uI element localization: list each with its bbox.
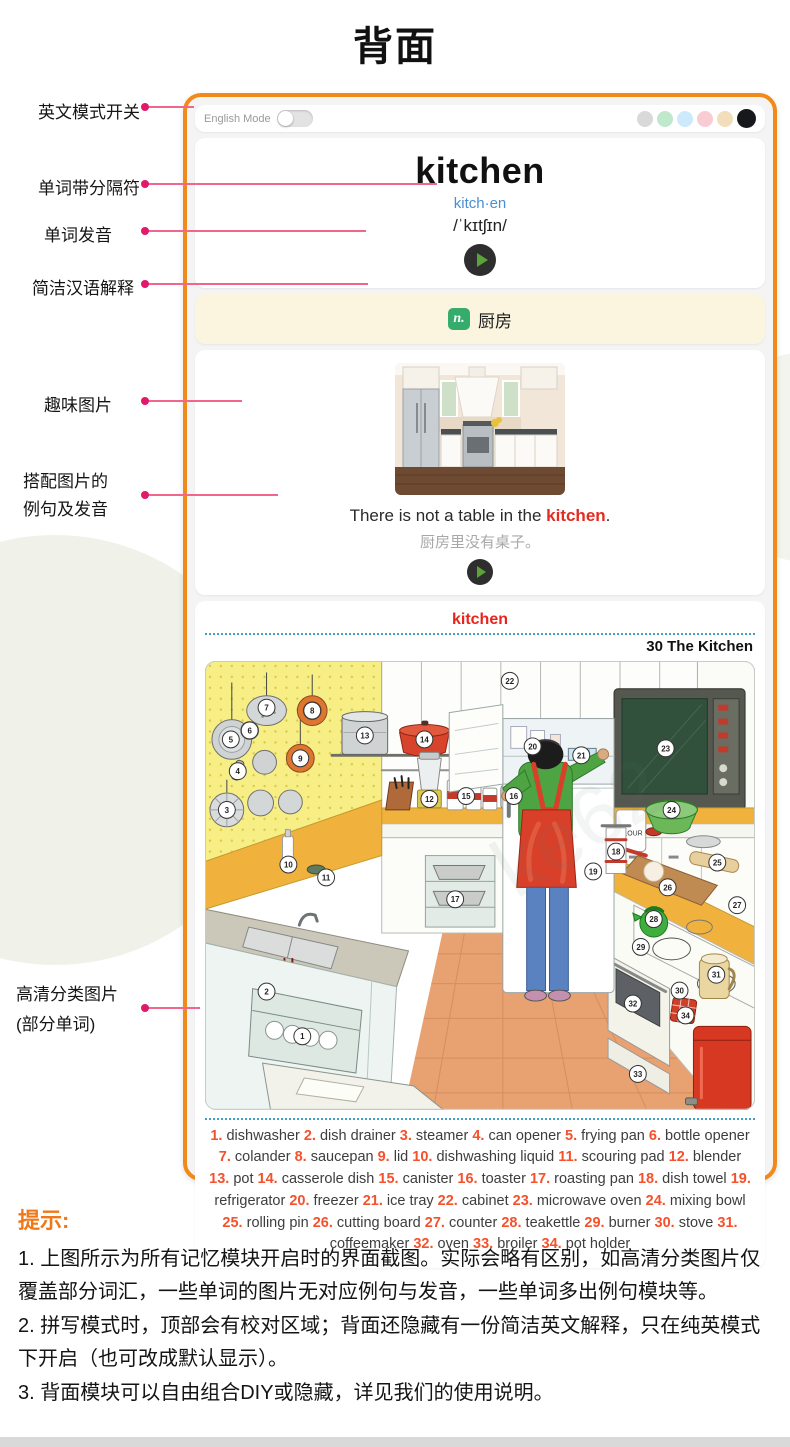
category-section: kitchen 30 The Kitchen: [195, 601, 765, 1268]
word-list-number: 16.: [457, 1171, 481, 1187]
word-list-number: 10.: [412, 1149, 436, 1165]
svg-text:5: 5: [229, 735, 234, 744]
tips-section: 提示: 1. 上图所示为所有记忆模块开启时的界面截图。实际会略有区别，如高清分类…: [18, 1203, 774, 1411]
word-list-term: saucepan: [311, 1149, 378, 1165]
annotation-chinese-def: 简洁汉语解释: [32, 274, 134, 299]
svg-text:29: 29: [636, 943, 645, 952]
word-list-number: 2.: [304, 1128, 320, 1144]
definition-section: n. 厨房: [195, 294, 765, 344]
word-list-number: 6.: [649, 1128, 665, 1144]
svg-text:33: 33: [633, 1070, 642, 1079]
svg-text:17: 17: [451, 895, 460, 904]
svg-text:11: 11: [322, 873, 331, 882]
word-list-number: 8.: [295, 1149, 311, 1165]
word-phonetic: /ˈkɪtʃɪn/: [195, 216, 765, 236]
annotation-hd-line2: (部分单词): [16, 1015, 95, 1034]
example-audio-button[interactable]: [467, 559, 493, 585]
word-list-term: dish towel: [662, 1171, 731, 1187]
word-list-term: lid: [394, 1149, 413, 1165]
connector-dot: [141, 280, 149, 288]
word-list-number: 4.: [472, 1128, 488, 1144]
example-section: There is not a table in the kitchen. 厨房里…: [195, 350, 765, 595]
category-keyword: kitchen: [205, 611, 755, 629]
word-list-number: 12.: [669, 1149, 693, 1165]
word-list-number: 7.: [219, 1149, 235, 1165]
svg-text:18: 18: [612, 848, 621, 857]
svg-text:19: 19: [589, 867, 598, 876]
svg-text:26: 26: [663, 883, 672, 892]
play-icon: [477, 566, 486, 578]
word-audio-button[interactable]: [464, 244, 496, 276]
word-list-term: dishwashing liquid: [436, 1149, 558, 1165]
annotation-pronunciation: 单词发音: [44, 221, 112, 246]
connector-dot: [141, 180, 149, 188]
svg-text:14: 14: [420, 735, 429, 744]
annotation-example: 搭配图片的例句及发音: [23, 468, 108, 524]
word-list-number: 5.: [565, 1128, 581, 1144]
word-list-term: steamer: [416, 1128, 472, 1144]
play-icon: [477, 253, 488, 267]
word-list-term: can opener: [488, 1128, 565, 1144]
connector-line: [146, 494, 278, 496]
word-list-term: dish drainer: [320, 1128, 400, 1144]
tips-heading: 提示:: [18, 1203, 774, 1235]
page-title: 背面: [0, 14, 790, 72]
sentence-keyword: kitchen: [546, 506, 606, 525]
word-list-number: 13.: [209, 1171, 233, 1187]
annotation-fun-picture: 趣味图片: [44, 391, 112, 416]
annotation-example-line2: 例句及发音: [23, 500, 108, 519]
word-list-term: blender: [693, 1149, 741, 1165]
svg-text:3: 3: [225, 806, 230, 815]
tip-2: 2. 拼写模式时，顶部会有校对区域；背面还隐藏有一份简洁英文解释，只在纯英模式下…: [18, 1310, 774, 1376]
pos-noun-badge: n.: [448, 308, 470, 330]
theme-dot[interactable]: [697, 111, 713, 127]
word-section: kitchen kitch·en /ˈkɪtʃɪn/: [195, 138, 765, 288]
word-list-term: colander: [235, 1149, 295, 1165]
word-list-term: roasting pan: [554, 1171, 638, 1187]
word-list-term: toaster: [482, 1171, 530, 1187]
svg-text:30: 30: [675, 987, 684, 996]
theme-dot[interactable]: [677, 111, 693, 127]
word-list-number: 17.: [530, 1171, 554, 1187]
toggle-knob: [278, 111, 293, 126]
svg-text:16: 16: [509, 792, 518, 801]
word-list-term: dishwasher: [226, 1128, 303, 1144]
dotted-divider: [205, 1118, 755, 1120]
word-list-number: 18.: [638, 1171, 662, 1187]
word-list-number: 11.: [558, 1149, 581, 1165]
svg-text:24: 24: [667, 806, 676, 815]
word-list-term: canister: [403, 1171, 458, 1187]
svg-text:22: 22: [505, 677, 514, 686]
english-mode-toggle[interactable]: [277, 110, 313, 127]
example-sentence: There is not a table in the kitchen.: [195, 506, 765, 526]
svg-text:23: 23: [661, 744, 670, 753]
tip-3: 3. 背面模块可以自由组合DIY或隐藏，详见我们的使用说明。: [18, 1377, 774, 1410]
tip-1: 1. 上图所示为所有记忆模块开启时的界面截图。实际会略有区别，如高清分类图片仅覆…: [18, 1243, 774, 1309]
definition-text: 厨房: [478, 307, 512, 332]
kitchen-photo: [395, 363, 565, 495]
svg-text:1: 1: [300, 1032, 305, 1041]
theme-dot[interactable]: [637, 111, 653, 127]
word-list-term: bottle opener: [665, 1128, 750, 1144]
svg-text:4: 4: [236, 767, 241, 776]
svg-text:6: 6: [247, 726, 252, 735]
theme-dot[interactable]: [737, 109, 756, 128]
word-list-number: 3.: [400, 1128, 416, 1144]
theme-dot[interactable]: [657, 111, 673, 127]
connector-dot: [141, 491, 149, 499]
bottom-bar: [0, 1437, 790, 1447]
connector-line: [146, 400, 242, 402]
word-syllables: kitch·en: [195, 195, 765, 212]
svg-text:34: 34: [681, 1011, 690, 1020]
connector-dot: [141, 1004, 149, 1012]
annotation-english-mode: 英文模式开关: [38, 98, 140, 123]
connector-line: [146, 183, 437, 185]
headword: kitchen: [195, 150, 765, 192]
annotation-separator: 单词带分隔符: [38, 174, 140, 199]
connector-line: [146, 230, 366, 232]
svg-text:27: 27: [733, 901, 742, 910]
svg-text:7: 7: [264, 704, 269, 713]
kitchen-illustration: FLOUR: [205, 661, 755, 1110]
annotation-example-line1: 搭配图片的: [23, 472, 108, 491]
svg-text:10: 10: [284, 860, 293, 869]
word-list-number: 1.: [210, 1128, 226, 1144]
connector-dot: [141, 397, 149, 405]
svg-text:28: 28: [649, 915, 658, 924]
svg-text:8: 8: [310, 707, 315, 716]
connector-line: [146, 1007, 200, 1009]
svg-text:25: 25: [713, 859, 722, 868]
svg-text:12: 12: [425, 795, 434, 804]
svg-text:32: 32: [628, 999, 637, 1008]
word-list-number: 19.: [731, 1171, 751, 1187]
connector-line: [146, 283, 368, 285]
dotted-divider: [205, 633, 755, 635]
svg-text:31: 31: [712, 971, 721, 980]
svg-text:2: 2: [264, 988, 269, 997]
word-list-number: 14.: [258, 1171, 282, 1187]
example-translation: 厨房里没有桌子。: [195, 531, 765, 552]
svg-text:20: 20: [528, 742, 537, 751]
card-topbar: English Mode: [195, 105, 765, 132]
word-list-number: 9.: [378, 1149, 394, 1165]
word-list-term: pot: [233, 1171, 257, 1187]
svg-text:21: 21: [577, 751, 586, 760]
connector-dot: [141, 227, 149, 235]
svg-text:9: 9: [298, 754, 303, 763]
theme-dot[interactable]: [717, 111, 733, 127]
sentence-suffix: .: [606, 506, 611, 525]
connector-dot: [141, 103, 149, 111]
svg-text:13: 13: [360, 731, 369, 740]
word-list-term: casserole dish: [282, 1171, 379, 1187]
theme-dots: [637, 109, 756, 128]
annotation-hd-line1: 高清分类图片: [16, 985, 118, 1004]
connector-line: [146, 106, 194, 108]
lesson-title: 30 The Kitchen: [205, 638, 753, 655]
word-list-term: frying pan: [581, 1128, 649, 1144]
flashcard-back: English Mode kitchen kitch·en /ˈkɪtʃɪn/ …: [183, 93, 777, 1181]
svg-text:15: 15: [462, 792, 471, 801]
english-mode-label: English Mode: [204, 113, 271, 125]
word-list-term: scouring pad: [582, 1149, 669, 1165]
annotation-hd-picture: 高清分类图片(部分单词): [16, 980, 118, 1040]
word-list-number: 15.: [378, 1171, 402, 1187]
sentence-prefix: There is not a table in the: [350, 506, 547, 525]
